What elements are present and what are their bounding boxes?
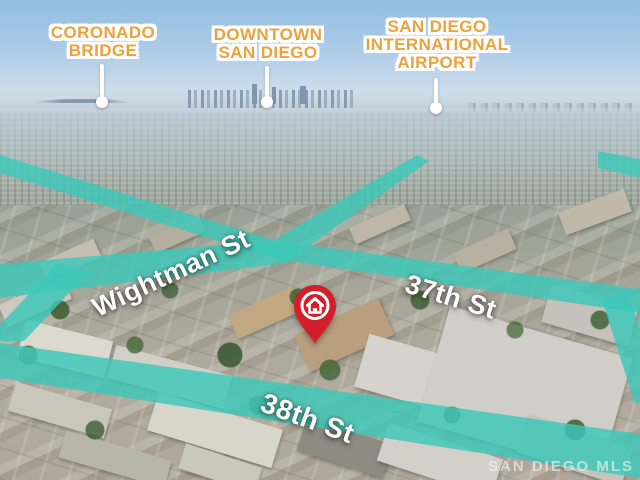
mls-watermark: SAN DIEGO MLS: [488, 458, 634, 475]
leader-dot: [261, 96, 273, 108]
label-line: SAN DIEGO: [349, 18, 525, 36]
leader-dot: [96, 96, 108, 108]
airport-label: SAN DIEGO INTERNATIONAL AIRPORT: [349, 18, 525, 73]
downtown-label: DOWNTOWN SAN DIEGO: [180, 26, 356, 62]
label-line: AIRPORT: [349, 54, 525, 72]
label-line: CORONADO: [15, 24, 191, 42]
label-line: SAN DIEGO: [180, 44, 356, 62]
property-pin: [292, 284, 338, 346]
leader-dot: [430, 102, 442, 114]
label-line: INTERNATIONAL: [349, 36, 525, 54]
street-highlight-wightman-east: [266, 155, 429, 263]
label-line: BRIDGE: [15, 42, 191, 60]
house-icon-door: [313, 308, 317, 313]
aerial-photo: Wightman St 37th St 38th St CORONADO BRI…: [0, 0, 640, 480]
coronado-bridge-label: CORONADO BRIDGE: [15, 24, 191, 60]
street-highlight-top-right: [598, 151, 640, 178]
label-line: DOWNTOWN: [180, 26, 356, 44]
